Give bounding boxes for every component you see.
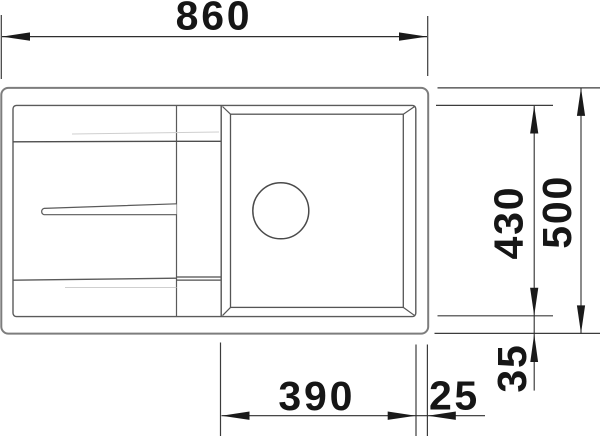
svg-text:430: 430: [486, 186, 532, 260]
svg-text:860: 860: [176, 0, 253, 39]
svg-text:500: 500: [534, 175, 580, 249]
svg-text:390: 390: [278, 373, 355, 419]
svg-text:35: 35: [489, 343, 535, 392]
svg-text:25: 25: [429, 373, 480, 419]
